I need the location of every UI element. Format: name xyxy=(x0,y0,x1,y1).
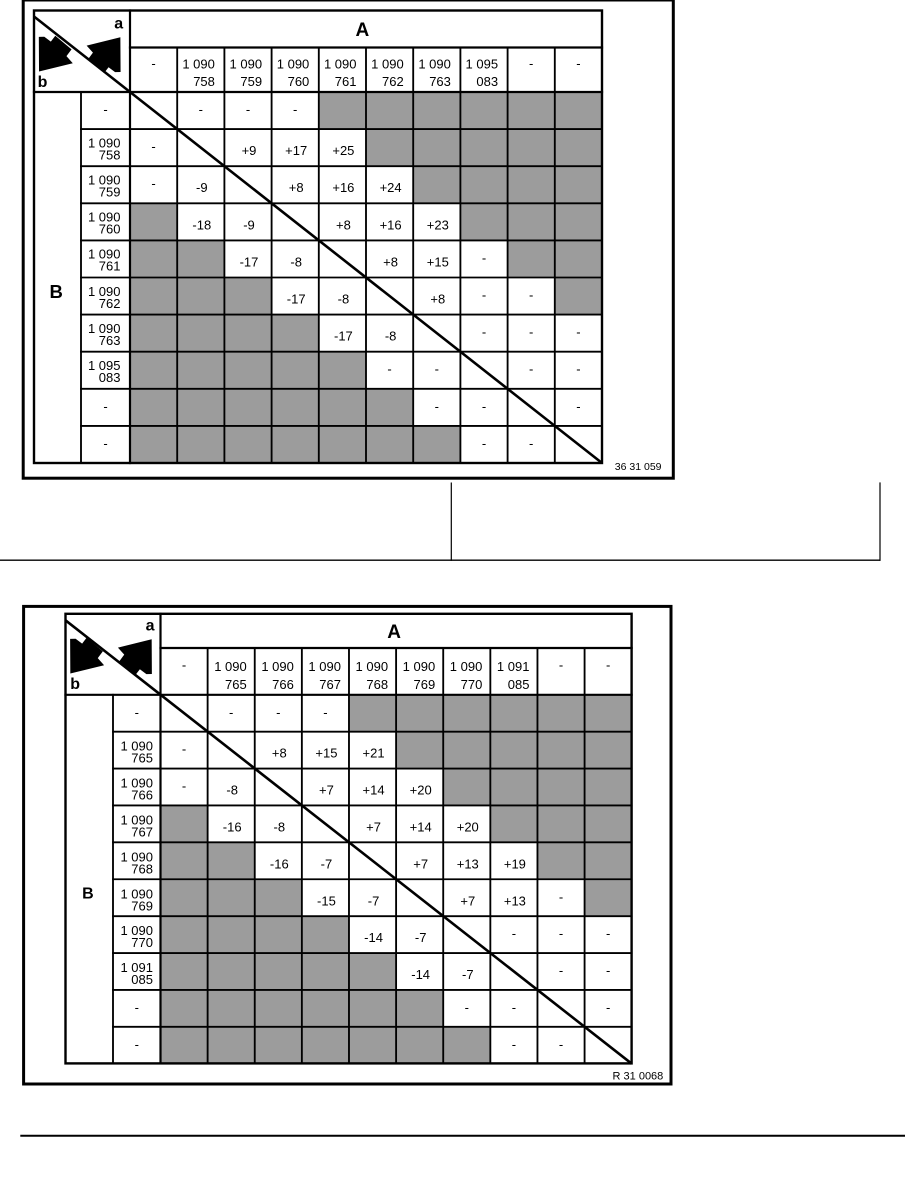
svg-text:+7: +7 xyxy=(413,856,428,871)
svg-text:+7: +7 xyxy=(460,893,475,908)
svg-text:-: - xyxy=(606,963,610,978)
svg-text:-18: -18 xyxy=(192,217,211,232)
svg-text:+16: +16 xyxy=(380,217,402,232)
svg-text:a: a xyxy=(114,15,123,32)
svg-text:B: B xyxy=(50,281,63,302)
svg-text:+13: +13 xyxy=(504,893,526,908)
svg-text:770: 770 xyxy=(461,677,483,692)
svg-text:+14: +14 xyxy=(363,783,385,798)
svg-text:1 095: 1 095 xyxy=(466,57,499,72)
svg-text:-: - xyxy=(482,436,486,451)
svg-text:-7: -7 xyxy=(321,856,333,871)
svg-text:1 090: 1 090 xyxy=(371,57,404,72)
svg-text:+8: +8 xyxy=(272,746,287,761)
svg-text:760: 760 xyxy=(99,222,121,237)
svg-text:-: - xyxy=(559,926,563,941)
svg-text:766: 766 xyxy=(131,788,153,803)
svg-text:-8: -8 xyxy=(226,783,238,798)
svg-text:-: - xyxy=(103,102,107,117)
svg-text:-: - xyxy=(151,176,155,191)
svg-text:1 090: 1 090 xyxy=(356,659,389,674)
svg-text:-: - xyxy=(559,963,563,978)
svg-text:-: - xyxy=(276,705,280,720)
svg-text:-: - xyxy=(512,1000,516,1015)
svg-text:-: - xyxy=(103,436,107,451)
svg-text:-16: -16 xyxy=(223,819,242,834)
svg-text:-: - xyxy=(606,926,610,941)
svg-text:+20: +20 xyxy=(410,783,432,798)
svg-text:-: - xyxy=(182,742,186,757)
svg-text:-17: -17 xyxy=(334,329,353,344)
svg-text:R 31 0068: R 31 0068 xyxy=(613,1071,664,1083)
svg-text:+8: +8 xyxy=(289,180,304,195)
svg-text:-9: -9 xyxy=(196,180,208,195)
svg-text:+7: +7 xyxy=(319,783,334,798)
svg-text:-: - xyxy=(576,325,580,340)
svg-text:-: - xyxy=(559,1037,563,1052)
svg-text:-17: -17 xyxy=(287,292,306,307)
svg-text:-16: -16 xyxy=(270,856,289,871)
svg-text:-: - xyxy=(512,926,516,941)
svg-text:758: 758 xyxy=(99,147,121,162)
svg-text:765: 765 xyxy=(131,751,153,766)
svg-text:-: - xyxy=(435,362,439,377)
svg-text:-9: -9 xyxy=(243,217,255,232)
svg-text:-: - xyxy=(576,399,580,414)
svg-text:+20: +20 xyxy=(457,819,479,834)
svg-text:083: 083 xyxy=(99,370,121,385)
svg-text:-: - xyxy=(606,1000,610,1015)
svg-text:-: - xyxy=(512,1037,516,1052)
svg-text:1 090: 1 090 xyxy=(214,659,247,674)
svg-text:758: 758 xyxy=(193,74,215,89)
svg-text:+7: +7 xyxy=(366,819,381,834)
svg-text:B: B xyxy=(82,885,94,902)
svg-text:-: - xyxy=(559,889,563,904)
svg-text:-8: -8 xyxy=(385,329,397,344)
svg-text:768: 768 xyxy=(131,861,153,876)
svg-text:-14: -14 xyxy=(411,967,430,982)
svg-text:1 090: 1 090 xyxy=(308,659,341,674)
svg-text:+13: +13 xyxy=(457,856,479,871)
svg-text:768: 768 xyxy=(366,677,388,692)
svg-text:+14: +14 xyxy=(410,819,432,834)
svg-text:-: - xyxy=(482,250,486,265)
svg-text:-: - xyxy=(135,1037,139,1052)
svg-text:-: - xyxy=(293,102,297,117)
svg-text:-7: -7 xyxy=(462,967,474,982)
svg-text:-8: -8 xyxy=(338,292,350,307)
svg-text:767: 767 xyxy=(319,677,341,692)
svg-text:-8: -8 xyxy=(274,819,286,834)
svg-text:-: - xyxy=(229,705,233,720)
svg-text:-14: -14 xyxy=(364,930,383,945)
svg-text:-: - xyxy=(529,362,533,377)
svg-text:759: 759 xyxy=(99,185,121,200)
svg-text:-: - xyxy=(151,139,155,154)
svg-text:085: 085 xyxy=(131,972,153,987)
svg-text:-: - xyxy=(103,399,107,414)
svg-text:+8: +8 xyxy=(336,217,351,232)
svg-text:083: 083 xyxy=(476,74,498,89)
svg-text:-: - xyxy=(482,399,486,414)
svg-text:-: - xyxy=(435,399,439,414)
svg-text:1 090: 1 090 xyxy=(418,57,451,72)
svg-text:+16: +16 xyxy=(332,180,354,195)
svg-text:770: 770 xyxy=(131,935,153,950)
svg-text:765: 765 xyxy=(225,677,247,692)
svg-text:763: 763 xyxy=(99,333,121,348)
svg-text:761: 761 xyxy=(335,74,357,89)
svg-text:+24: +24 xyxy=(380,180,402,195)
svg-text:+8: +8 xyxy=(430,292,445,307)
svg-text:+25: +25 xyxy=(332,143,354,158)
svg-text:-: - xyxy=(182,658,186,673)
svg-text:-: - xyxy=(199,102,203,117)
svg-text:1 090: 1 090 xyxy=(277,57,310,72)
svg-text:1 090: 1 090 xyxy=(230,57,263,72)
svg-text:-: - xyxy=(465,1000,469,1015)
svg-text:-17: -17 xyxy=(240,254,259,269)
svg-text:-8: -8 xyxy=(290,254,302,269)
svg-text:-7: -7 xyxy=(368,893,380,908)
svg-text:-7: -7 xyxy=(415,930,427,945)
svg-text:b: b xyxy=(38,74,48,91)
svg-text:+9: +9 xyxy=(242,143,257,158)
svg-text:-: - xyxy=(576,362,580,377)
svg-text:-: - xyxy=(529,288,533,303)
svg-text:-: - xyxy=(135,1000,139,1015)
svg-text:-: - xyxy=(323,705,327,720)
svg-text:-: - xyxy=(529,436,533,451)
svg-text:1 090: 1 090 xyxy=(450,659,483,674)
svg-text:769: 769 xyxy=(414,677,436,692)
svg-text:-: - xyxy=(182,779,186,794)
svg-text:085: 085 xyxy=(508,677,530,692)
svg-text:-: - xyxy=(559,658,563,673)
svg-text:762: 762 xyxy=(99,296,121,311)
svg-text:a: a xyxy=(146,618,155,635)
svg-text:-: - xyxy=(387,362,391,377)
svg-text:1 090: 1 090 xyxy=(403,659,436,674)
svg-text:1 090: 1 090 xyxy=(261,659,294,674)
svg-text:-: - xyxy=(529,325,533,340)
svg-text:1 090: 1 090 xyxy=(324,57,357,72)
svg-text:767: 767 xyxy=(131,824,153,839)
svg-text:762: 762 xyxy=(382,74,404,89)
svg-text:-: - xyxy=(529,56,533,71)
svg-text:1 090: 1 090 xyxy=(182,57,215,72)
svg-text:36 31 059: 36 31 059 xyxy=(615,461,662,473)
svg-text:766: 766 xyxy=(272,677,294,692)
svg-text:761: 761 xyxy=(99,259,121,274)
svg-text:-: - xyxy=(576,56,580,71)
svg-text:-: - xyxy=(135,705,139,720)
svg-text:+19: +19 xyxy=(504,856,526,871)
svg-text:A: A xyxy=(356,20,370,41)
svg-text:-15: -15 xyxy=(317,893,336,908)
svg-text:-: - xyxy=(151,56,155,71)
svg-text:+8: +8 xyxy=(383,254,398,269)
svg-text:+17: +17 xyxy=(285,143,307,158)
svg-text:+23: +23 xyxy=(427,217,449,232)
svg-text:+21: +21 xyxy=(363,746,385,761)
svg-text:-: - xyxy=(482,325,486,340)
svg-text:1 091: 1 091 xyxy=(497,659,530,674)
svg-text:-: - xyxy=(606,658,610,673)
svg-text:760: 760 xyxy=(288,74,310,89)
svg-text:763: 763 xyxy=(429,74,451,89)
svg-text:-: - xyxy=(246,102,250,117)
svg-text:A: A xyxy=(387,622,401,643)
svg-text:-: - xyxy=(482,288,486,303)
svg-text:759: 759 xyxy=(240,74,262,89)
svg-text:+15: +15 xyxy=(427,254,449,269)
svg-text:b: b xyxy=(70,676,80,693)
svg-text:+15: +15 xyxy=(315,746,337,761)
svg-text:769: 769 xyxy=(131,898,153,913)
